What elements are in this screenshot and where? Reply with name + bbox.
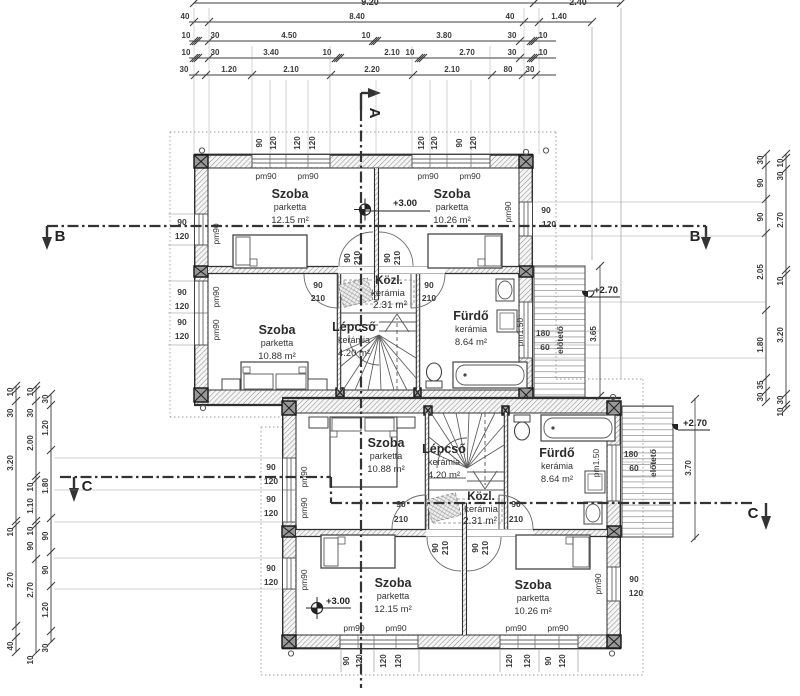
svg-text:10: 10 bbox=[26, 482, 35, 491]
svg-text:90: 90 bbox=[511, 499, 521, 509]
svg-text:90: 90 bbox=[313, 280, 323, 290]
svg-text:60: 60 bbox=[629, 463, 639, 473]
svg-text:2.31 m²: 2.31 m² bbox=[373, 300, 408, 311]
svg-text:2.70: 2.70 bbox=[6, 572, 15, 588]
svg-text:180: 180 bbox=[536, 328, 550, 338]
svg-text:parketta: parketta bbox=[436, 202, 469, 212]
svg-text:3.70: 3.70 bbox=[684, 460, 693, 476]
svg-text:1.10: 1.10 bbox=[26, 498, 35, 514]
svg-text:90: 90 bbox=[430, 543, 440, 553]
svg-text:Szoba: Szoba bbox=[368, 436, 406, 450]
svg-text:120: 120 bbox=[264, 577, 278, 587]
svg-text:1.20: 1.20 bbox=[41, 602, 50, 618]
svg-text:8.40: 8.40 bbox=[349, 12, 365, 21]
svg-text:4.20 m²: 4.20 m² bbox=[428, 470, 460, 481]
svg-text:parketta: parketta bbox=[261, 338, 294, 348]
svg-text:90: 90 bbox=[424, 280, 434, 290]
svg-text:210: 210 bbox=[352, 251, 362, 265]
svg-text:90: 90 bbox=[544, 656, 553, 665]
svg-text:3.40: 3.40 bbox=[263, 48, 279, 57]
svg-text:10.88 m²: 10.88 m² bbox=[258, 351, 296, 362]
svg-text:Közl.: Közl. bbox=[375, 275, 402, 287]
svg-text:1.80: 1.80 bbox=[756, 337, 765, 353]
svg-text:+3.00: +3.00 bbox=[326, 596, 350, 607]
svg-text:120: 120 bbox=[175, 331, 189, 341]
svg-text:90: 90 bbox=[266, 494, 276, 504]
svg-text:Szoba: Szoba bbox=[434, 187, 472, 201]
svg-text:90: 90 bbox=[470, 543, 480, 553]
svg-text:Lépcső: Lépcső bbox=[332, 320, 376, 334]
svg-text:80: 80 bbox=[504, 65, 513, 74]
svg-text:kerámia: kerámia bbox=[338, 335, 370, 345]
svg-text:90: 90 bbox=[756, 178, 765, 187]
svg-text:2.70: 2.70 bbox=[459, 48, 475, 57]
svg-text:90: 90 bbox=[177, 287, 187, 297]
svg-text:30: 30 bbox=[6, 408, 15, 417]
svg-text:10: 10 bbox=[26, 526, 35, 535]
svg-text:120: 120 bbox=[430, 136, 439, 150]
svg-text:pm90: pm90 bbox=[547, 623, 569, 633]
svg-text:10: 10 bbox=[26, 387, 35, 396]
svg-text:40: 40 bbox=[506, 12, 515, 21]
svg-text:C: C bbox=[748, 505, 759, 522]
svg-text:2.70: 2.70 bbox=[776, 212, 785, 228]
svg-text:120: 120 bbox=[264, 476, 278, 486]
svg-text:pm90: pm90 bbox=[211, 223, 221, 245]
svg-text:pm1.50: pm1.50 bbox=[591, 449, 601, 478]
svg-text:Szoba: Szoba bbox=[272, 187, 310, 201]
svg-text:30: 30 bbox=[776, 171, 785, 180]
svg-text:120: 120 bbox=[308, 136, 317, 150]
svg-text:Szoba: Szoba bbox=[515, 578, 553, 592]
svg-text:kerámia: kerámia bbox=[371, 288, 406, 299]
svg-text:90: 90 bbox=[266, 563, 276, 573]
svg-text:30: 30 bbox=[526, 65, 535, 74]
svg-text:Fürdő: Fürdő bbox=[453, 309, 489, 323]
svg-text:120: 120 bbox=[542, 219, 556, 229]
svg-text:10: 10 bbox=[182, 31, 191, 40]
svg-text:Fürdő: Fürdő bbox=[539, 446, 575, 460]
svg-text:120: 120 bbox=[293, 136, 302, 150]
svg-text:90: 90 bbox=[342, 253, 352, 263]
svg-text:2.10: 2.10 bbox=[384, 48, 400, 57]
svg-text:Közl.: Közl. bbox=[467, 491, 494, 503]
svg-text:10: 10 bbox=[539, 31, 548, 40]
svg-text:30: 30 bbox=[776, 395, 785, 404]
svg-text:pm90: pm90 bbox=[385, 623, 407, 633]
svg-text:pm90: pm90 bbox=[503, 201, 513, 223]
svg-text:pm90: pm90 bbox=[593, 573, 603, 595]
svg-text:B: B bbox=[690, 228, 701, 245]
svg-text:90: 90 bbox=[382, 253, 392, 263]
svg-text:120: 120 bbox=[355, 654, 364, 668]
svg-text:90: 90 bbox=[541, 205, 551, 215]
svg-text:pm1.50: pm1.50 bbox=[515, 318, 525, 347]
svg-text:120: 120 bbox=[379, 654, 388, 668]
svg-text:90: 90 bbox=[177, 217, 187, 227]
svg-text:30: 30 bbox=[41, 394, 50, 403]
svg-text:pm90: pm90 bbox=[211, 286, 221, 308]
svg-text:10: 10 bbox=[6, 527, 15, 536]
svg-text:2.10: 2.10 bbox=[444, 65, 460, 74]
svg-text:pm90: pm90 bbox=[417, 171, 439, 181]
svg-text:120: 120 bbox=[629, 588, 643, 598]
svg-text:3.80: 3.80 bbox=[436, 31, 452, 40]
svg-text:90: 90 bbox=[41, 531, 50, 540]
svg-text:10.26 m²: 10.26 m² bbox=[514, 606, 552, 617]
svg-text:120: 120 bbox=[269, 136, 278, 150]
svg-text:parketta: parketta bbox=[370, 451, 403, 461]
svg-text:A: A bbox=[366, 108, 383, 119]
svg-text:90: 90 bbox=[177, 317, 187, 327]
svg-text:10: 10 bbox=[182, 48, 191, 57]
svg-text:120: 120 bbox=[175, 231, 189, 241]
svg-text:120: 120 bbox=[469, 136, 478, 150]
svg-text:120: 120 bbox=[264, 508, 278, 518]
svg-text:1.40: 1.40 bbox=[551, 12, 567, 21]
svg-text:10: 10 bbox=[323, 48, 332, 57]
svg-text:30: 30 bbox=[756, 155, 765, 164]
svg-text:3.65: 3.65 bbox=[589, 326, 598, 342]
svg-text:60: 60 bbox=[540, 342, 550, 352]
svg-text:1.80: 1.80 bbox=[41, 478, 50, 494]
svg-text:4.20 m²: 4.20 m² bbox=[338, 348, 370, 359]
svg-text:pm90: pm90 bbox=[299, 466, 309, 488]
svg-text:30: 30 bbox=[508, 48, 517, 57]
svg-text:pm90: pm90 bbox=[299, 497, 309, 519]
svg-text:90: 90 bbox=[342, 656, 351, 665]
svg-text:8.64 m²: 8.64 m² bbox=[455, 337, 487, 348]
svg-text:90: 90 bbox=[266, 462, 276, 472]
svg-text:210: 210 bbox=[509, 514, 523, 524]
svg-text:210: 210 bbox=[422, 293, 436, 303]
svg-text:pm90: pm90 bbox=[297, 171, 319, 181]
svg-text:90: 90 bbox=[455, 138, 464, 147]
svg-text:120: 120 bbox=[394, 654, 403, 668]
svg-text:2.00: 2.00 bbox=[26, 435, 35, 451]
svg-text:2.10: 2.10 bbox=[283, 65, 299, 74]
svg-text:90: 90 bbox=[26, 541, 35, 550]
svg-text:210: 210 bbox=[392, 251, 402, 265]
svg-text:210: 210 bbox=[480, 541, 490, 555]
svg-text:B: B bbox=[55, 228, 66, 245]
svg-text:+3.00: +3.00 bbox=[393, 198, 417, 209]
svg-text:10: 10 bbox=[362, 31, 371, 40]
svg-text:előtető: előtető bbox=[555, 326, 565, 354]
svg-text:10: 10 bbox=[776, 158, 785, 167]
svg-text:120: 120 bbox=[175, 301, 189, 311]
svg-text:2.05: 2.05 bbox=[756, 264, 765, 280]
svg-text:pm90: pm90 bbox=[255, 171, 277, 181]
svg-text:Lépcső: Lépcső bbox=[422, 442, 466, 456]
svg-text:pm90: pm90 bbox=[211, 319, 221, 341]
svg-text:Szoba: Szoba bbox=[259, 323, 297, 337]
svg-text:10.88 m²: 10.88 m² bbox=[367, 464, 405, 475]
svg-text:10: 10 bbox=[539, 48, 548, 57]
svg-text:40: 40 bbox=[181, 12, 190, 21]
svg-text:120: 120 bbox=[417, 136, 426, 150]
svg-text:kerámia: kerámia bbox=[455, 324, 487, 334]
svg-text:12.15 m²: 12.15 m² bbox=[271, 215, 309, 226]
svg-text:30: 30 bbox=[211, 31, 220, 40]
svg-text:10: 10 bbox=[26, 655, 35, 664]
svg-text:+2.70: +2.70 bbox=[594, 285, 618, 296]
svg-text:180: 180 bbox=[624, 449, 638, 459]
svg-text:C: C bbox=[82, 478, 93, 495]
svg-text:30: 30 bbox=[180, 65, 189, 74]
svg-text:1.20: 1.20 bbox=[221, 65, 237, 74]
svg-text:90: 90 bbox=[41, 565, 50, 574]
svg-text:9.20: 9.20 bbox=[361, 0, 379, 7]
svg-text:120: 120 bbox=[523, 654, 532, 668]
svg-text:4.50: 4.50 bbox=[281, 31, 297, 40]
svg-text:1.20: 1.20 bbox=[41, 420, 50, 436]
svg-text:30: 30 bbox=[211, 48, 220, 57]
svg-text:90: 90 bbox=[756, 212, 765, 221]
svg-text:210: 210 bbox=[394, 514, 408, 524]
svg-text:10: 10 bbox=[6, 387, 15, 396]
svg-text:parketta: parketta bbox=[517, 593, 550, 603]
svg-text:10: 10 bbox=[406, 48, 415, 57]
svg-text:2.70: 2.70 bbox=[26, 582, 35, 598]
svg-text:2.31 m²: 2.31 m² bbox=[463, 516, 498, 527]
svg-text:pm90: pm90 bbox=[505, 623, 527, 633]
svg-text:30: 30 bbox=[41, 643, 50, 652]
svg-text:210: 210 bbox=[311, 293, 325, 303]
svg-text:30: 30 bbox=[508, 31, 517, 40]
svg-text:előtető: előtető bbox=[648, 449, 658, 477]
svg-text:pm90: pm90 bbox=[343, 623, 365, 633]
svg-text:2.40: 2.40 bbox=[569, 0, 587, 7]
svg-text:2.20: 2.20 bbox=[364, 65, 380, 74]
svg-text:40: 40 bbox=[6, 641, 15, 650]
svg-text:10: 10 bbox=[776, 276, 785, 285]
svg-text:8.64 m²: 8.64 m² bbox=[541, 474, 573, 485]
svg-text:pm90: pm90 bbox=[459, 171, 481, 181]
svg-text:10: 10 bbox=[776, 407, 785, 416]
svg-text:90: 90 bbox=[629, 574, 639, 584]
svg-text:90: 90 bbox=[396, 499, 406, 509]
svg-text:3.20: 3.20 bbox=[6, 455, 15, 471]
svg-text:35: 35 bbox=[756, 380, 765, 389]
svg-text:120: 120 bbox=[558, 654, 567, 668]
svg-text:30: 30 bbox=[756, 392, 765, 401]
svg-text:parketta: parketta bbox=[274, 202, 307, 212]
svg-text:3.20: 3.20 bbox=[776, 327, 785, 343]
svg-text:30: 30 bbox=[26, 408, 35, 417]
svg-text:kerámia: kerámia bbox=[541, 461, 573, 471]
svg-text:120: 120 bbox=[505, 654, 514, 668]
svg-text:10.26 m²: 10.26 m² bbox=[433, 215, 471, 226]
svg-text:Szoba: Szoba bbox=[375, 576, 413, 590]
svg-text:90: 90 bbox=[255, 138, 264, 147]
svg-text:parketta: parketta bbox=[377, 591, 410, 601]
svg-text:12.15 m²: 12.15 m² bbox=[374, 604, 412, 615]
svg-text:210: 210 bbox=[440, 541, 450, 555]
svg-text:kerámia: kerámia bbox=[464, 504, 499, 515]
svg-text:kerámia: kerámia bbox=[428, 457, 460, 467]
svg-text:pm90: pm90 bbox=[299, 569, 309, 591]
